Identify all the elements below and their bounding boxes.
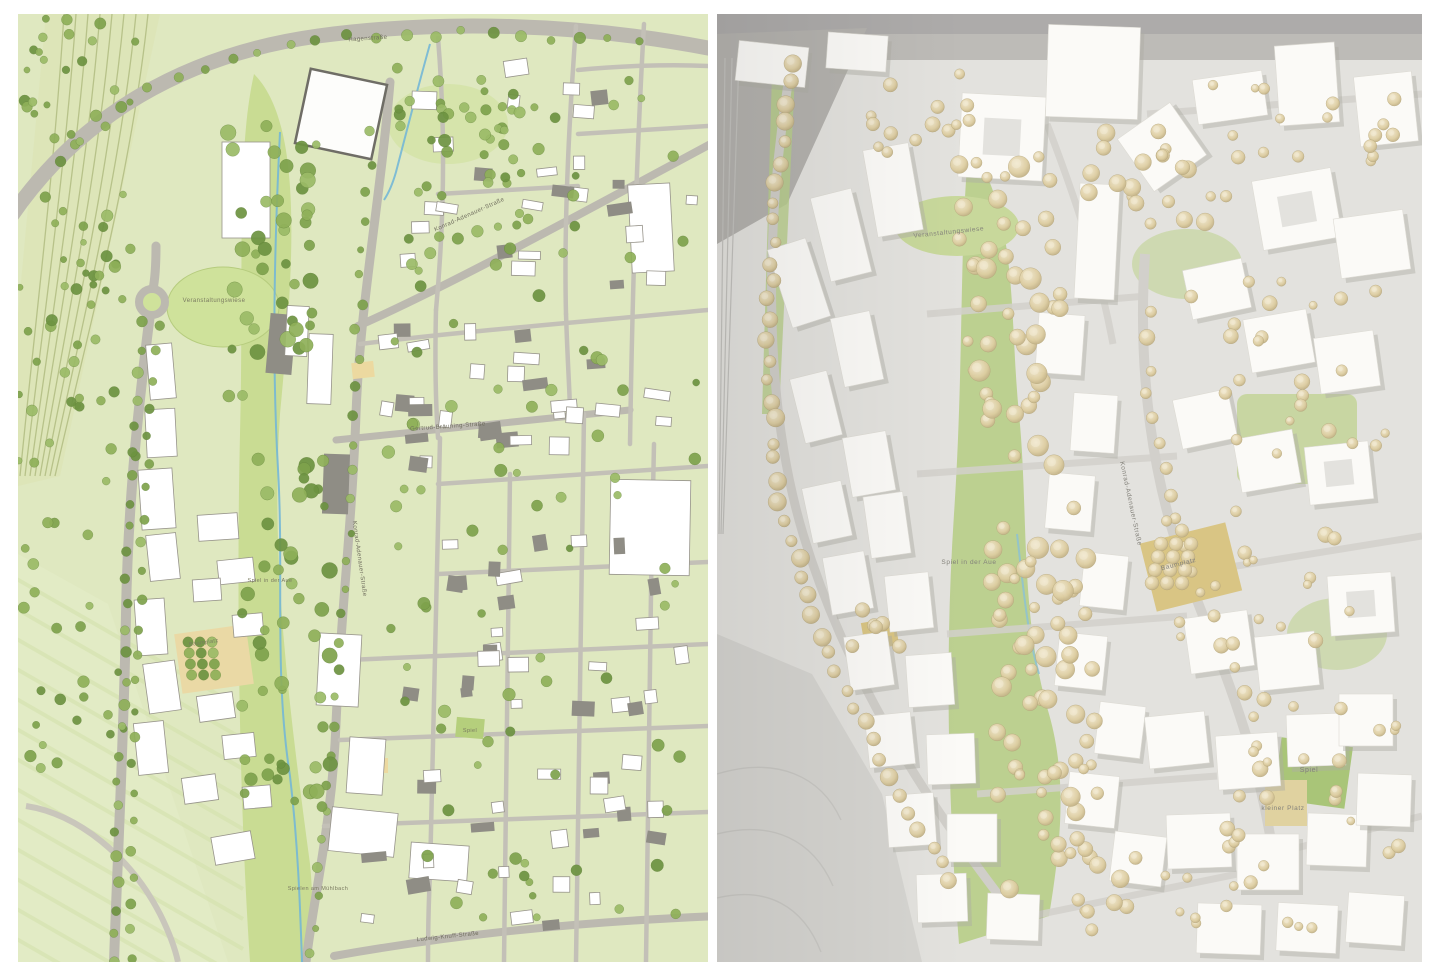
model-svg: Veranstaltungswiese Spiel in der Aue Bau…: [717, 14, 1422, 962]
photo-vignette: [717, 14, 1422, 962]
label-spiel-in-der-aue: Spiel in der Aue: [248, 578, 293, 584]
masterplan-drawing-panel: Hagenstraße Konrad-Adenauer-Straße Konra…: [18, 14, 708, 962]
label-veranstaltungswiese: Veranstaltungswiese: [183, 298, 246, 304]
model-label-spiel-in-der-aue: Spiel in der Aue: [941, 559, 996, 566]
label-konrad-adenauer-strasse-vertical: Konrad-Adenauer-Straße: [351, 521, 368, 598]
model-label-spiel: Spiel: [1300, 767, 1319, 774]
masterplan-svg: Hagenstraße Konrad-Adenauer-Straße Konra…: [18, 14, 708, 962]
model-photo-panel: Veranstaltungswiese Spiel in der Aue Bau…: [717, 14, 1422, 962]
model-label-kleiner-platz: kleiner Platz: [1261, 805, 1304, 812]
label-spiel: Spiel: [463, 728, 477, 734]
label-spielen-am-muehlbach: Spielen am Mühlbach: [288, 886, 349, 892]
comparison-image: Hagenstraße Konrad-Adenauer-Straße Konra…: [0, 0, 1440, 976]
